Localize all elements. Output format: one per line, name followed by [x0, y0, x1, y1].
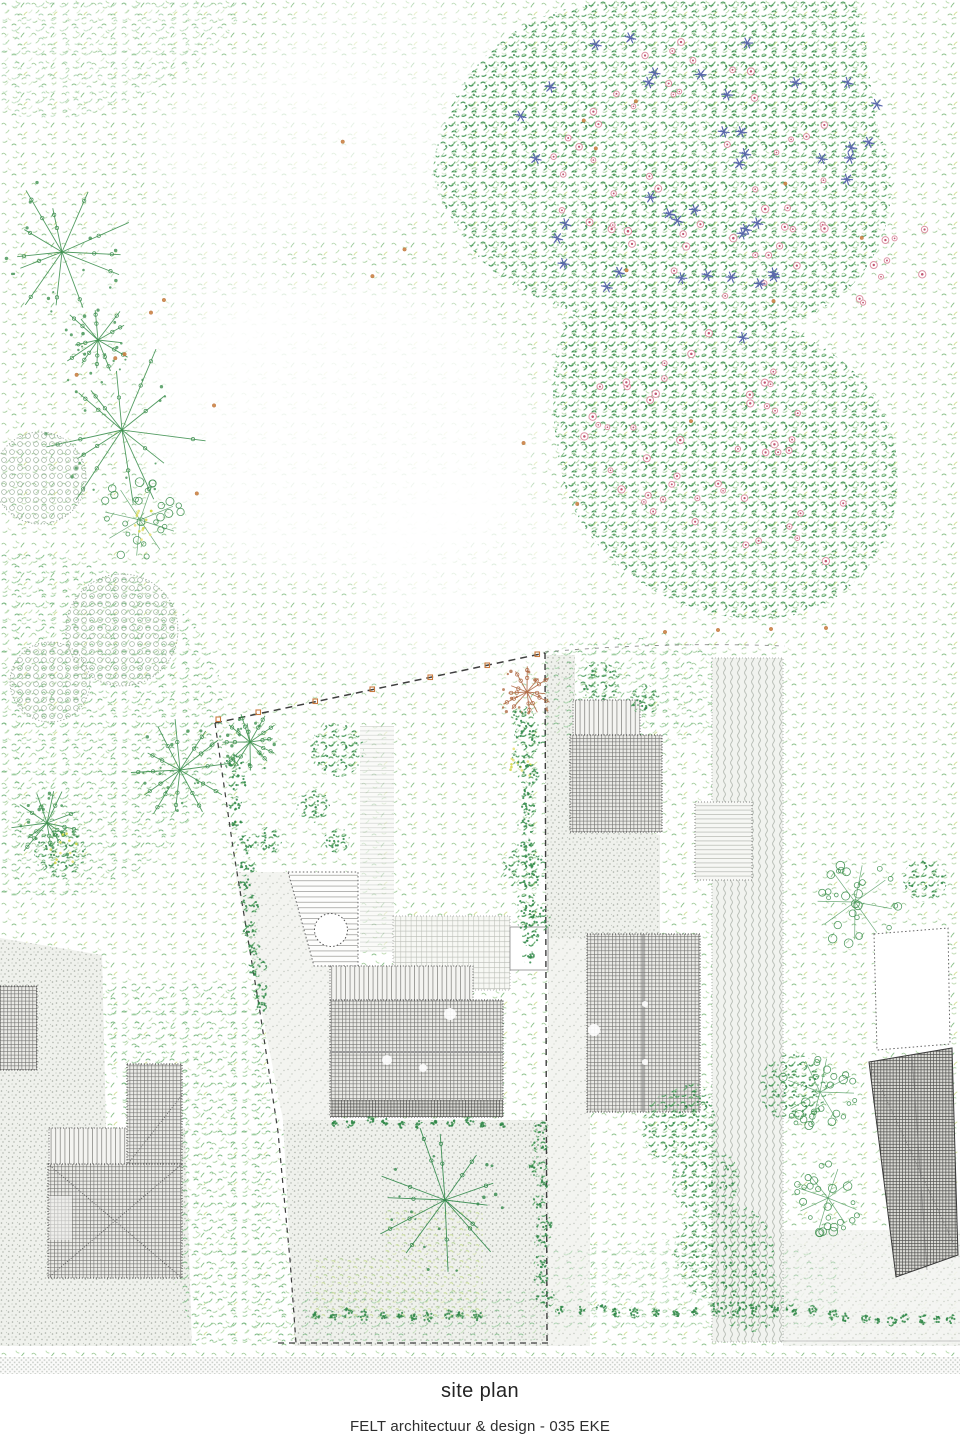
north-outbuilding-roof [570, 735, 662, 832]
east-terrace [695, 802, 752, 880]
southwest-carport [49, 1128, 127, 1166]
main-house-south-edge [330, 1100, 503, 1117]
southwest-house-wing [127, 1064, 182, 1165]
vacant-plot-outline [874, 928, 950, 1050]
site-plan-svg [0, 0, 960, 1376]
main-house-north-wing [330, 966, 473, 1000]
credit-line: FELT architectuur & design - 035 EKE [0, 1418, 960, 1435]
main-house-roof [330, 1000, 503, 1117]
drawing-title: site plan [0, 1380, 960, 1403]
mown-path [360, 726, 394, 952]
site-plan-drawing [0, 0, 960, 1376]
north-outbuilding-wing [573, 700, 640, 735]
deck-circle-opening [315, 914, 348, 947]
site-plan-page: site plan FELT architectuur & design - 0… [0, 0, 960, 1441]
west-shed-roof [0, 986, 37, 1070]
